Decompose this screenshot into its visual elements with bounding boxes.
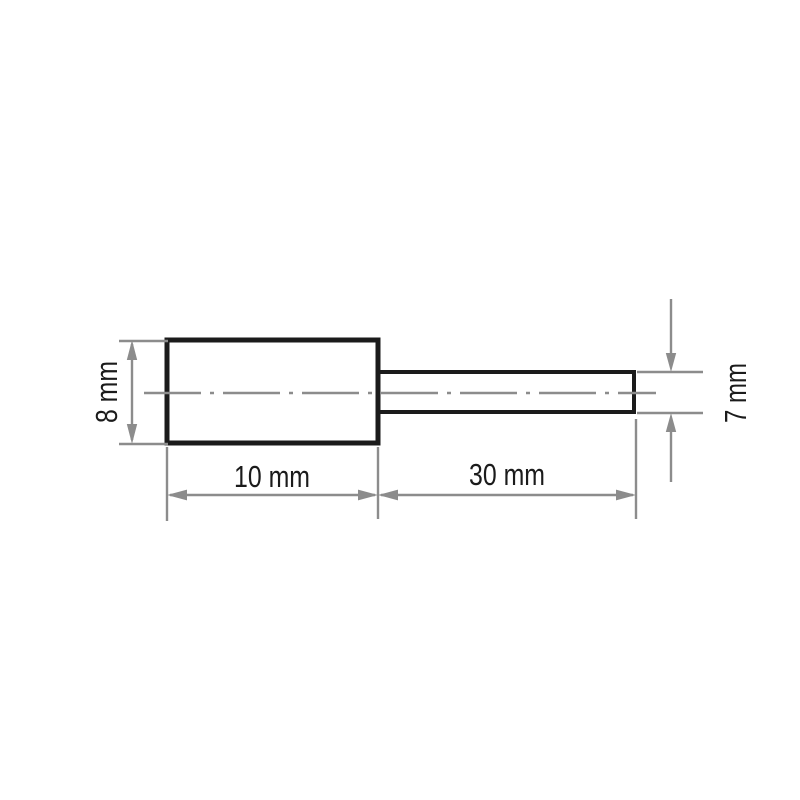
arrowhead-left bbox=[167, 490, 187, 501]
arrowhead-down bbox=[127, 424, 137, 444]
arrowhead-up bbox=[127, 340, 137, 360]
head-outline bbox=[167, 340, 378, 443]
mounted-point-drawing: 8 mm 10 mm 30 mm 7 mm bbox=[0, 0, 800, 800]
dim-head-length: 10 mm bbox=[167, 447, 378, 521]
arrowhead-right bbox=[358, 490, 378, 501]
arrowhead-down bbox=[666, 353, 676, 372]
part-outline bbox=[167, 340, 634, 443]
dim-label-shank-length: 30 mm bbox=[469, 457, 545, 492]
arrowhead-up bbox=[666, 413, 676, 432]
technical-drawing-canvas: 8 mm 10 mm 30 mm 7 mm bbox=[0, 0, 800, 800]
dim-shank-length: 30 mm bbox=[378, 419, 636, 519]
dim-label-head-length: 10 mm bbox=[234, 459, 310, 494]
arrowhead-left bbox=[378, 490, 398, 501]
dim-label-head-diameter: 8 mm bbox=[89, 361, 124, 423]
arrowhead-right bbox=[616, 490, 636, 501]
dim-shank-diameter: 7 mm bbox=[637, 299, 753, 482]
dim-label-shank-diameter: 7 mm bbox=[718, 363, 753, 423]
